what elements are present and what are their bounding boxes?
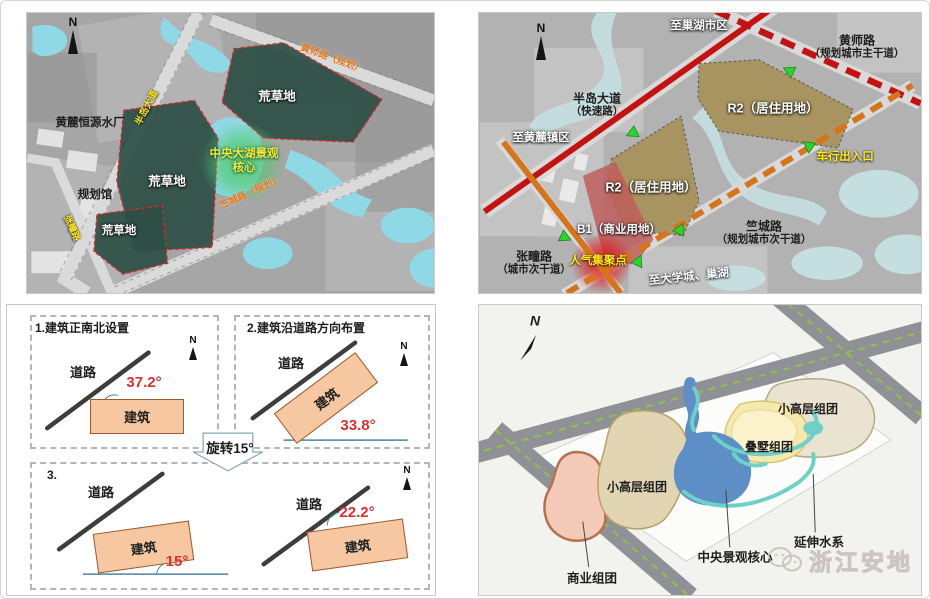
label-water-plant: 黄麓恒源水厂 bbox=[56, 117, 125, 131]
box2-title: 2.建筑沿道路方向布置 bbox=[247, 321, 365, 335]
compass-letter: N bbox=[537, 21, 546, 35]
rotate-note: 旋转15° bbox=[206, 441, 253, 457]
label-lake-core-line2: 核心 bbox=[210, 162, 279, 176]
label-vehicle-access: 车行出入口 bbox=[816, 151, 874, 165]
angle-15: 15° bbox=[166, 553, 189, 571]
compass-letter: N bbox=[400, 341, 407, 352]
building-label: 建筑 bbox=[310, 383, 342, 414]
label-stacked-villa: 叠墅组团 bbox=[745, 440, 793, 454]
label-water-system: 延伸水系 bbox=[794, 536, 844, 551]
compass-north: N bbox=[531, 21, 551, 60]
compass-north: N bbox=[396, 341, 412, 366]
road-label-3b: 道路 bbox=[296, 497, 322, 513]
label-wasteland-b: 荒草地 bbox=[148, 175, 186, 190]
label-highrise-west: 小高层组团 bbox=[607, 480, 667, 494]
compass-north: N bbox=[399, 465, 415, 490]
label-commercial: 商业组团 bbox=[567, 572, 617, 587]
box1-title: 1.建筑正南北设置 bbox=[35, 321, 129, 335]
label-to-chaohu: 至巢湖市区 bbox=[670, 20, 728, 34]
label-planning-hall: 规划馆 bbox=[78, 189, 113, 203]
label-lake-core: 中央大湖景观 核心 bbox=[210, 148, 279, 176]
road-name: 半岛大道 bbox=[573, 91, 621, 105]
label-highrise-east: 小高层组团 bbox=[778, 402, 838, 416]
compass-letter: N bbox=[403, 465, 410, 476]
building-label: 建筑 bbox=[343, 534, 371, 556]
angle-37-2: 37.2° bbox=[126, 374, 161, 392]
building-1: 建筑 bbox=[90, 399, 184, 434]
label-b1-commercial: B1（商业用地） bbox=[577, 224, 661, 238]
panel-road-planning: N 至巢湖市区 黄师路 （规划城市主干道） 半岛大道 （快速路） 至黄麓镇区 R… bbox=[478, 12, 922, 294]
compass-needle-icon bbox=[400, 353, 408, 366]
label-popularity-node: 人气集聚点 bbox=[569, 255, 627, 269]
angle-22-2: 22.2° bbox=[339, 504, 374, 522]
label-wasteland-a: 荒草地 bbox=[258, 90, 296, 105]
road-class: （规划城市次干道） bbox=[717, 234, 812, 247]
road-label-1: 道路 bbox=[70, 365, 96, 381]
label-r2-west: R2（居住用地） bbox=[606, 181, 697, 196]
compass-needle-icon bbox=[536, 36, 546, 60]
road-name: 黄师路 bbox=[839, 33, 875, 47]
building-label: 建筑 bbox=[124, 407, 150, 426]
panel-rotation-study: 1.建筑正南北设置 2.建筑沿道路方向布置 3. N N N 建筑 建筑 建筑 … bbox=[6, 304, 436, 596]
road-label-2: 道路 bbox=[278, 356, 304, 372]
road-name: 竺城路 bbox=[746, 219, 782, 233]
road-class: （规划城市主干道） bbox=[810, 48, 905, 61]
stream-pond bbox=[803, 421, 823, 435]
compass-north: N bbox=[63, 15, 83, 54]
angle-33-8: 33.8° bbox=[340, 417, 375, 435]
compass-needle-icon bbox=[68, 30, 78, 54]
compass-letter: N bbox=[530, 313, 540, 330]
compass-needle-icon bbox=[189, 347, 197, 360]
label-r2-east: R2（居住用地） bbox=[728, 102, 819, 117]
label-central-core: 中央景观核心 bbox=[697, 551, 772, 566]
panel-site-context: N 黄麓恒源水厂 规划馆 荒草地 荒草地 荒草地 中央大湖景观 核心 半岛大道 … bbox=[26, 12, 435, 294]
compass-letter: N bbox=[69, 15, 78, 29]
box3-title: 3. bbox=[47, 468, 57, 482]
road-class: （城市次干道） bbox=[497, 264, 571, 277]
label-to-huanglu: 至黄麓镇区 bbox=[512, 132, 570, 146]
compass-letter: N bbox=[189, 335, 196, 346]
compass-needle-icon bbox=[403, 477, 411, 490]
compass-north: N bbox=[185, 335, 201, 360]
planning-figure-board: N 黄麓恒源水厂 规划馆 荒草地 荒草地 荒草地 中央大湖景观 核心 半岛大道 … bbox=[0, 0, 930, 599]
label-huangshi-road: 黄师路 （规划城市主干道） bbox=[810, 33, 905, 60]
label-zhucheng-road: 竺城路 （规划城市次干道） bbox=[717, 219, 812, 246]
building-label: 建筑 bbox=[129, 536, 157, 558]
label-wasteland-c: 荒草地 bbox=[102, 225, 137, 239]
panel-concept-plan: N 浙江安地 小高层组团 小高层组团 叠墅组团 商业组团 中央景观核心 延伸水系 bbox=[478, 304, 922, 596]
label-lake-core-line1: 中央大湖景观 bbox=[210, 148, 279, 162]
road-class: （快速路） bbox=[571, 106, 624, 119]
road-label-3a: 道路 bbox=[88, 485, 114, 501]
label-zhangtuan-road: 张疃路 （城市次干道） bbox=[497, 249, 571, 276]
road-name: 张疃路 bbox=[516, 249, 552, 263]
label-bandao-avenue: 半岛大道 （快速路） bbox=[571, 91, 624, 118]
